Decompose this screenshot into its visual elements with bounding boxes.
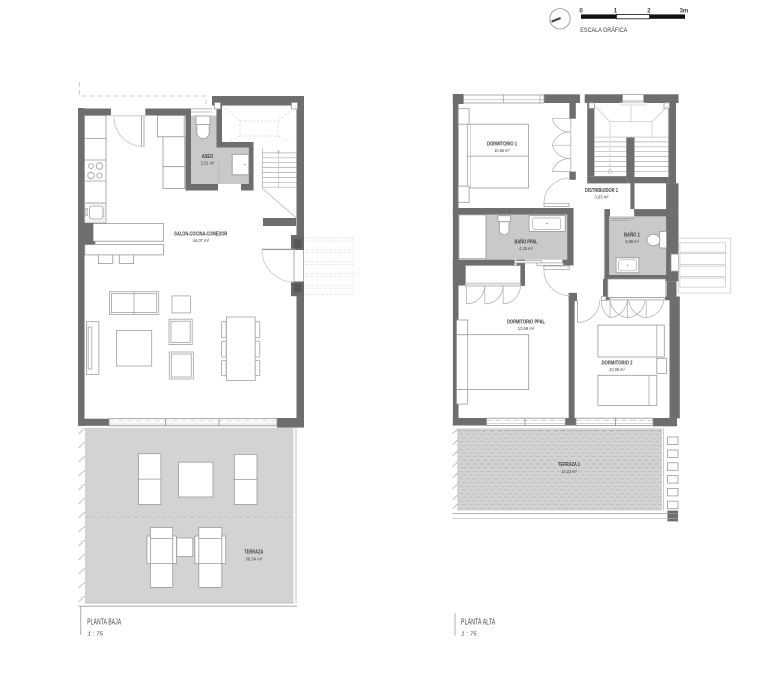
svg-text:14,22 m²: 14,22 m² xyxy=(561,469,577,474)
svg-text:DORMITORIO 2: DORMITORIO 2 xyxy=(602,361,633,367)
svg-text:30,34 m²: 30,34 m² xyxy=(245,557,262,562)
svg-text:TERRAZA: TERRAZA xyxy=(244,550,263,556)
svg-text:ESCALA GRÁFICA: ESCALA GRÁFICA xyxy=(580,27,627,34)
svg-text:3,88 m²: 3,88 m² xyxy=(625,239,639,244)
svg-text:44,07 m²: 44,07 m² xyxy=(193,238,210,243)
svg-text:DORMITORIO PPAL: DORMITORIO PPAL xyxy=(507,320,545,326)
svg-text:1 : 75: 1 : 75 xyxy=(461,632,477,638)
svg-text:3,63 m²: 3,63 m² xyxy=(595,195,609,200)
svg-text:PLANTA BAJA: PLANTA BAJA xyxy=(87,618,121,627)
svg-text:DISTRIBUIDOR 1: DISTRIBUIDOR 1 xyxy=(585,188,618,194)
svg-text:4,25 m²: 4,25 m² xyxy=(519,246,533,251)
svg-text:PLANTA ALTA: PLANTA ALTA xyxy=(461,618,496,627)
svg-text:3m: 3m xyxy=(680,9,689,15)
svg-text:10,09 m²: 10,09 m² xyxy=(609,367,625,372)
svg-text:1 : 75: 1 : 75 xyxy=(88,632,104,638)
svg-text:TERRAZA 1: TERRAZA 1 xyxy=(558,462,580,468)
svg-text:SALON-COCINA-COMEDOR: SALON-COCINA-COMEDOR xyxy=(174,232,227,238)
svg-text:10,65 m²: 10,65 m² xyxy=(494,148,510,153)
svg-text:BAÑO PPAL: BAÑO PPAL xyxy=(515,239,538,246)
svg-text:13,69 m²: 13,69 m² xyxy=(518,326,535,331)
svg-text:DORMITORIO 1: DORMITORIO 1 xyxy=(487,142,517,148)
svg-text:ASEO: ASEO xyxy=(202,154,214,160)
svg-text:BAÑO 1: BAÑO 1 xyxy=(624,232,640,239)
svg-text:2,51 m²: 2,51 m² xyxy=(201,161,215,166)
